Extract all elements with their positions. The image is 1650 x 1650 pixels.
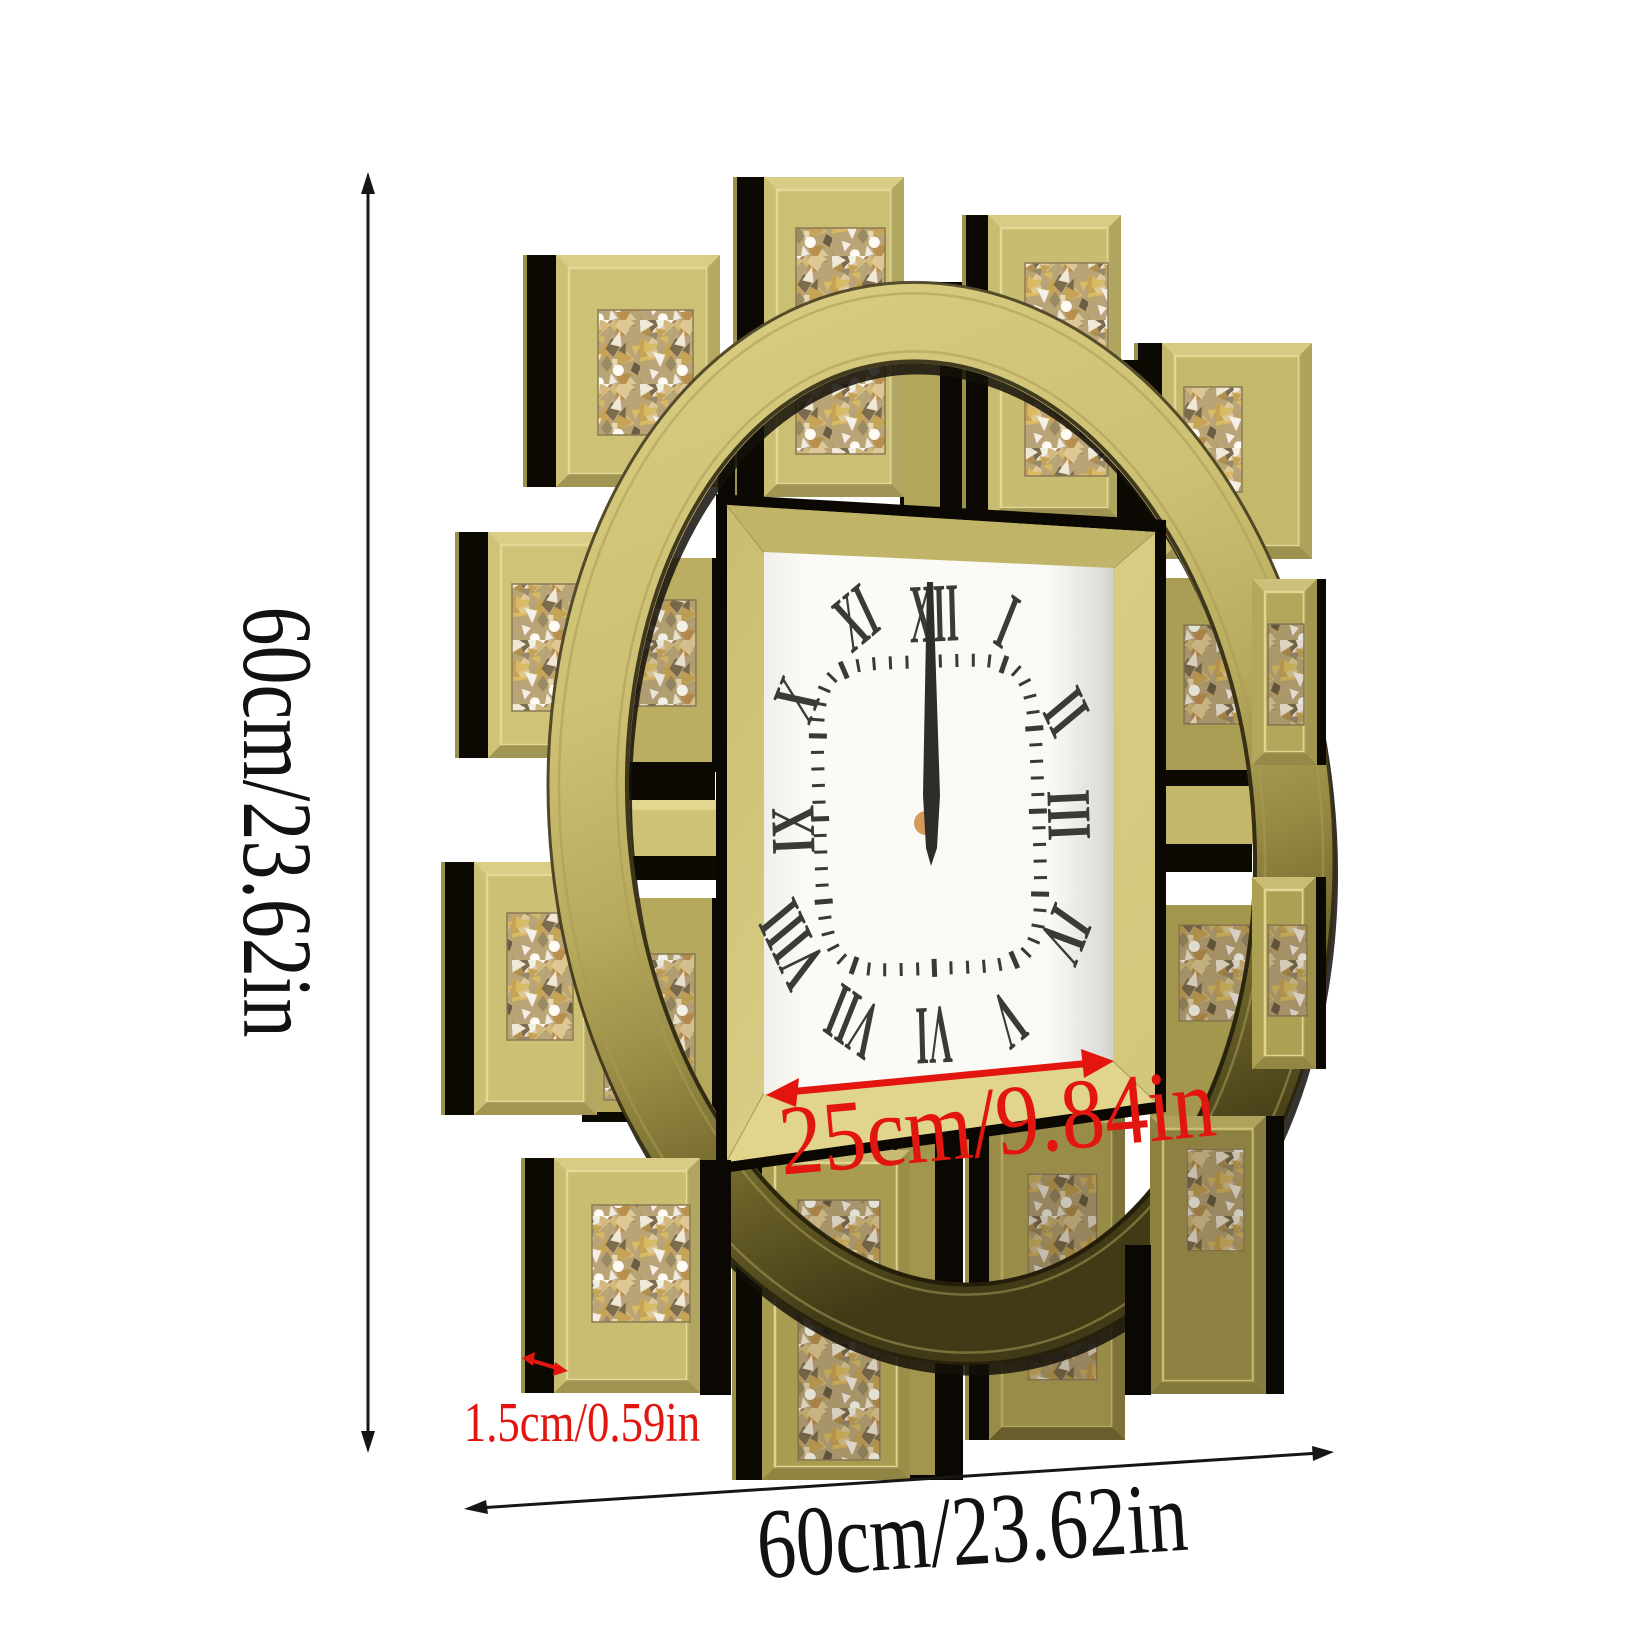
svg-text:60cm/23.62in: 60cm/23.62in	[753, 1462, 1190, 1601]
svg-text:1.5cm/0.59in: 1.5cm/0.59in	[464, 1391, 700, 1453]
svg-text:III: III	[1033, 788, 1104, 842]
svg-text:VI: VI	[915, 988, 954, 1083]
svg-text:60cm/23.62in: 60cm/23.62in	[222, 606, 332, 1037]
svg-text:IX: IX	[758, 804, 829, 856]
